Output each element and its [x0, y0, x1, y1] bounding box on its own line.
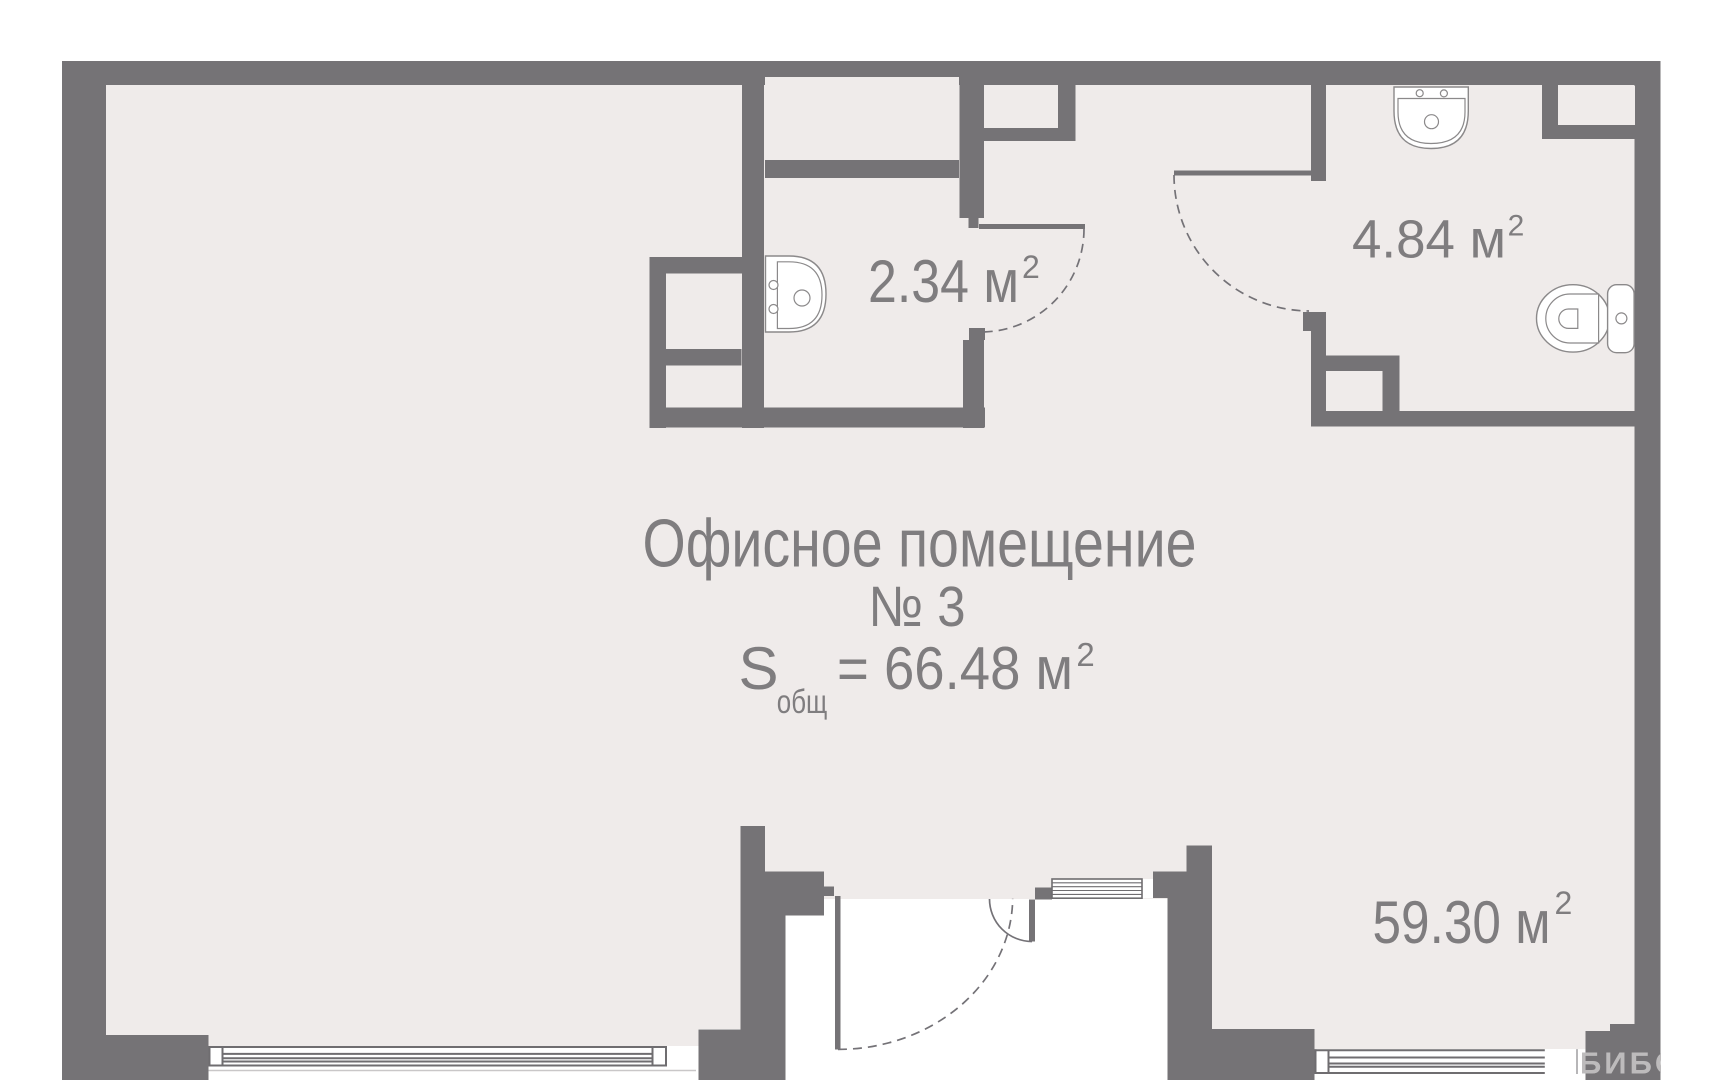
- svg-text:№ 3: № 3: [869, 575, 966, 639]
- svg-text:2: 2: [1076, 636, 1094, 673]
- svg-text:4.84 м: 4.84 м: [1352, 210, 1506, 270]
- svg-text:= 66.48 м: = 66.48 м: [837, 635, 1073, 702]
- svg-text:Офисное помещение: Офисное помещение: [643, 506, 1197, 582]
- svg-text:S: S: [739, 635, 779, 702]
- svg-text:2.34 м: 2.34 м: [868, 248, 1019, 315]
- svg-text:общ: общ: [777, 683, 828, 720]
- svg-text:2: 2: [1508, 210, 1525, 243]
- svg-text:59.30 м: 59.30 м: [1373, 889, 1551, 956]
- svg-text:2: 2: [1555, 885, 1573, 921]
- svg-text:2: 2: [1022, 249, 1040, 285]
